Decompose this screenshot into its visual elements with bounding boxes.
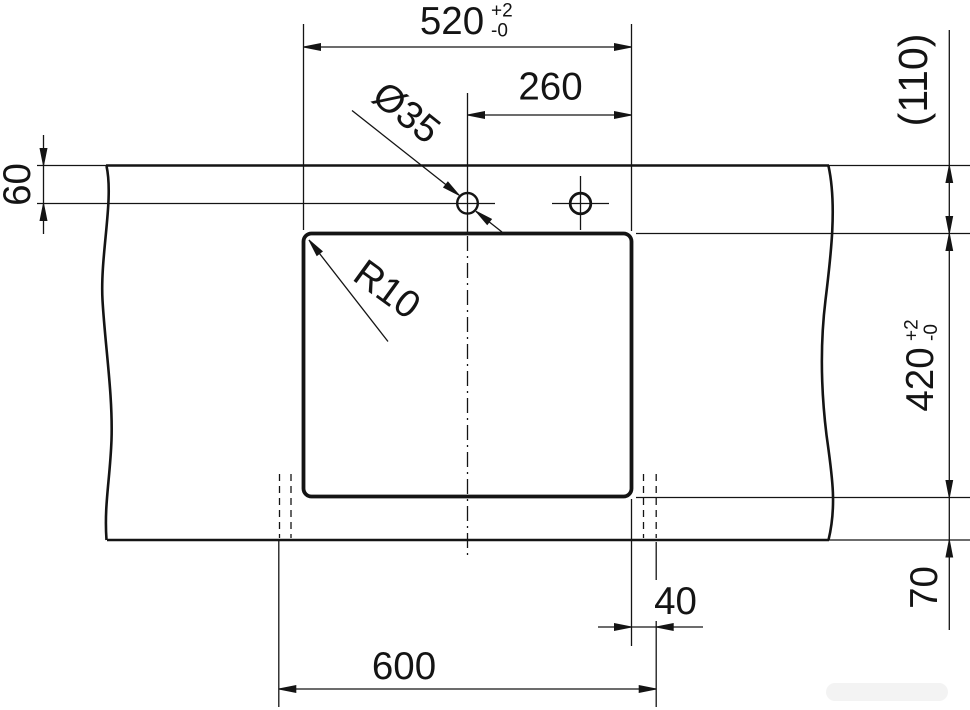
- svg-text:+2: +2: [491, 1, 513, 22]
- svg-text:600: 600: [372, 645, 436, 688]
- svg-text:+2: +2: [902, 319, 923, 341]
- svg-text:420: 420: [899, 347, 942, 411]
- svg-text:(110): (110): [890, 34, 936, 127]
- svg-text:-0: -0: [921, 324, 942, 341]
- svg-text:40: 40: [654, 580, 697, 623]
- svg-text:60: 60: [0, 163, 39, 206]
- svg-text:520: 520: [420, 0, 484, 43]
- svg-text:70: 70: [903, 566, 946, 609]
- svg-text:260: 260: [518, 66, 582, 109]
- svg-text:-0: -0: [491, 21, 508, 42]
